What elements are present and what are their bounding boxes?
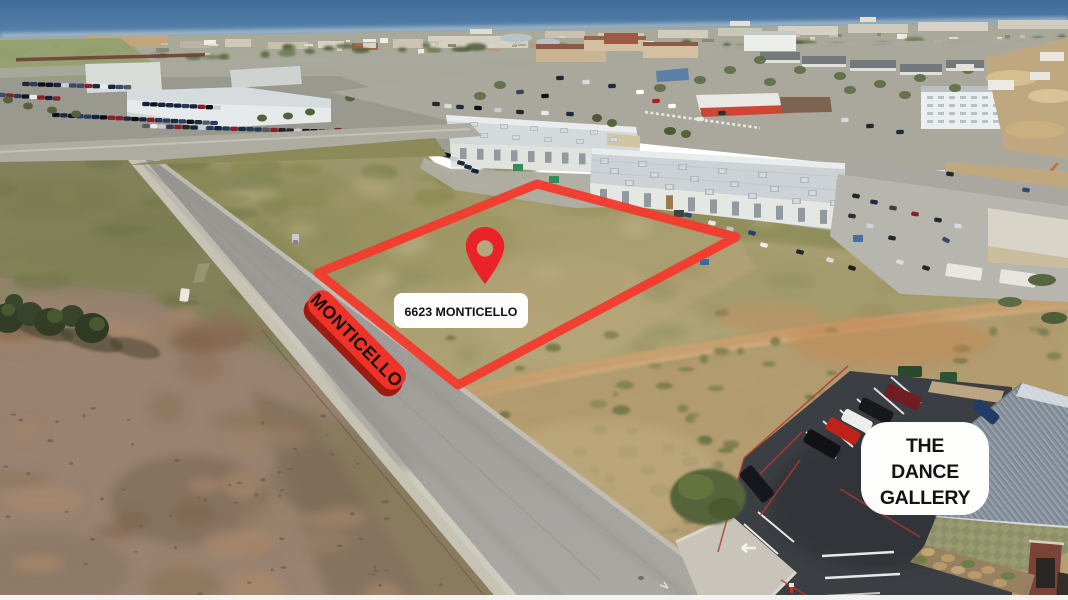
svg-text:THE: THE [906,435,944,457]
svg-text:6623 MONTICELLO: 6623 MONTICELLO [405,305,518,319]
svg-text:DANCE: DANCE [891,461,959,483]
svg-text:GALLERY: GALLERY [880,487,971,509]
